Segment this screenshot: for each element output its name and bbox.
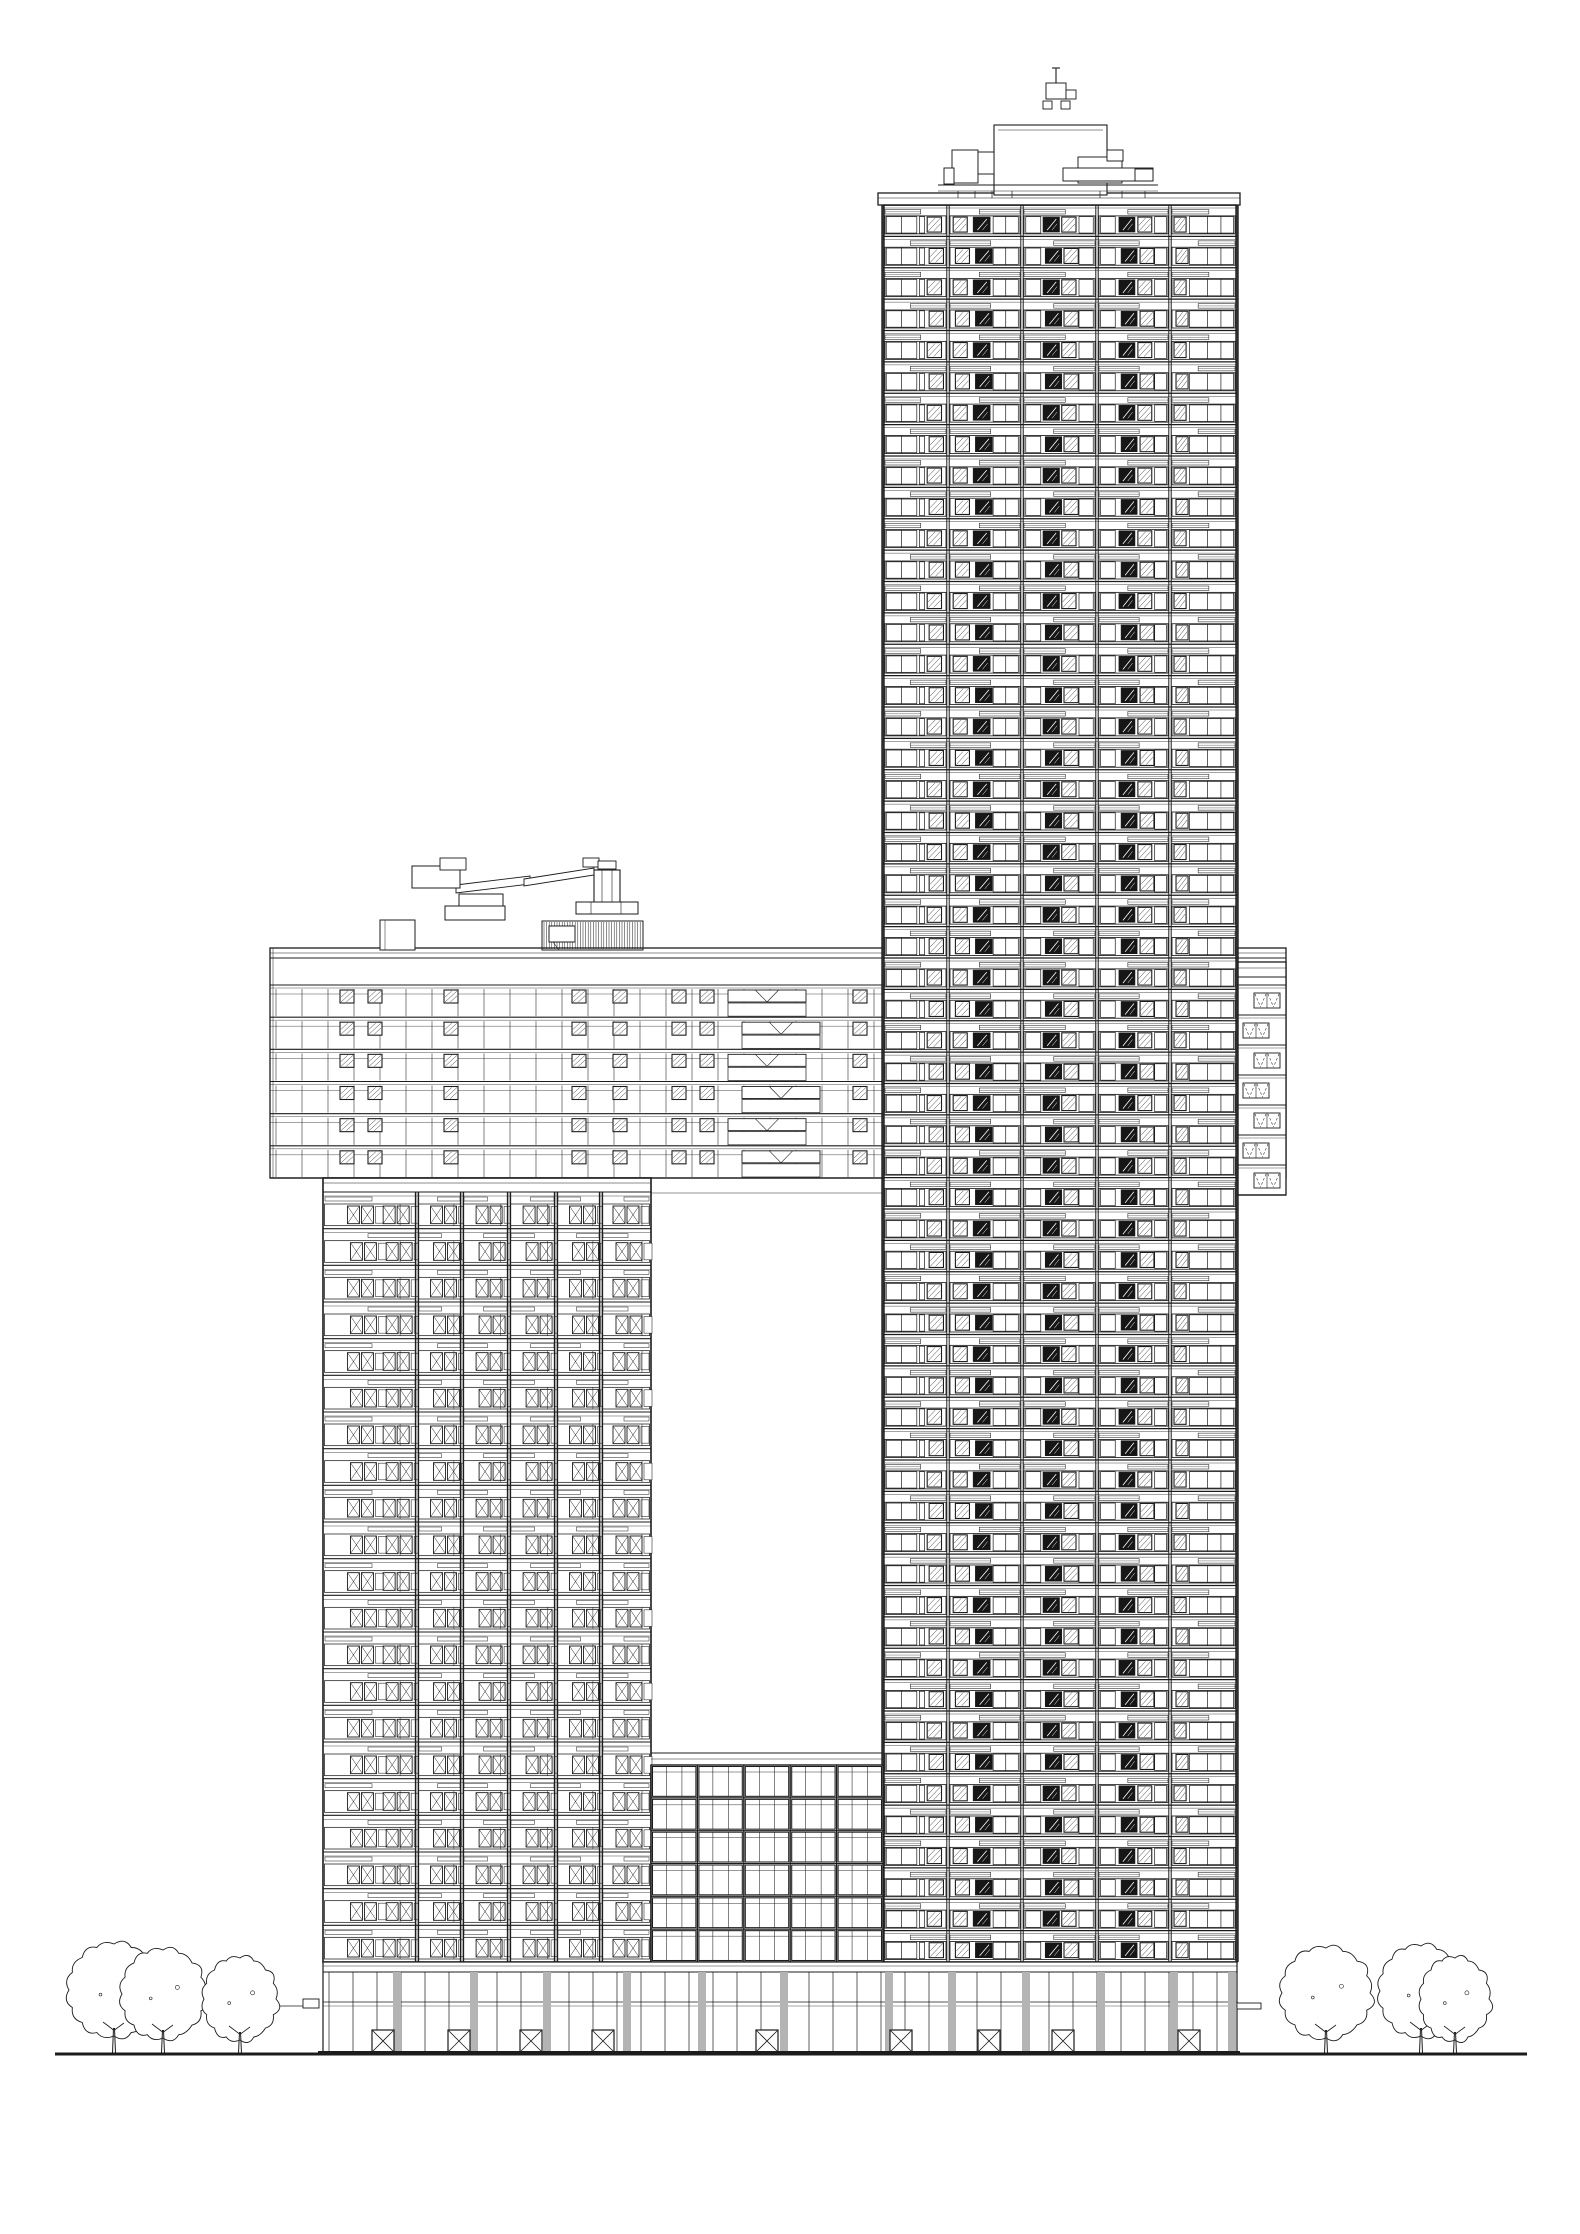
tall-tower — [878, 193, 1240, 1962]
bmu-crane — [380, 858, 643, 950]
trees-left — [66, 1941, 280, 2053]
left-tower — [323, 1178, 652, 1962]
drawing-sheet — [0, 0, 1580, 2234]
roof-plant — [938, 68, 1158, 198]
trees-right — [1279, 1943, 1492, 2053]
ground-floor — [213, 1962, 1261, 2052]
podium-infill — [651, 1753, 883, 1962]
right-wing — [1237, 962, 1286, 1195]
building-elevation-drawing — [0, 0, 1580, 2234]
